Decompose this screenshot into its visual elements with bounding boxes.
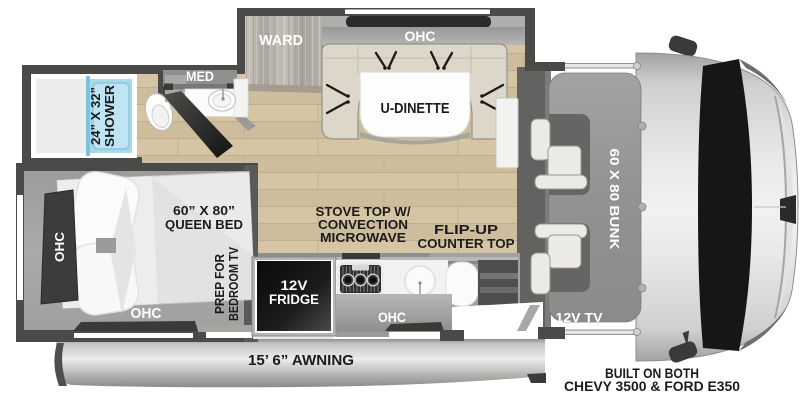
- svg-text:12V: 12V: [281, 278, 308, 293]
- svg-text:QUEEN BED: QUEEN BED: [165, 217, 243, 232]
- svg-text:WARD: WARD: [259, 32, 303, 49]
- svg-text:12V TV: 12V TV: [556, 311, 604, 325]
- svg-text:OHC: OHC: [131, 306, 162, 322]
- svg-text:OHC: OHC: [405, 28, 436, 44]
- svg-text:MICROWAVE: MICROWAVE: [320, 231, 406, 245]
- svg-text:STOVE TOP W/: STOVE TOP W/: [316, 205, 412, 219]
- svg-text:15’ 6” AWNING: 15’ 6” AWNING: [248, 352, 354, 369]
- svg-text:MED: MED: [186, 69, 214, 84]
- svg-text:FLIP-UP: FLIP-UP: [434, 223, 498, 237]
- svg-text:COUNTER TOP: COUNTER TOP: [418, 237, 515, 251]
- svg-text:U-DINETTE: U-DINETTE: [381, 100, 450, 117]
- svg-text:CONVECTION: CONVECTION: [318, 218, 408, 232]
- svg-text:OHC: OHC: [52, 231, 67, 262]
- svg-text:CHEVY 3500 & FORD E350: CHEVY 3500 & FORD E350: [564, 379, 740, 394]
- svg-text:24” X 32”: 24” X 32”: [88, 87, 103, 145]
- svg-text:FRIDGE: FRIDGE: [269, 292, 319, 307]
- svg-text:60” X 80”: 60” X 80”: [173, 203, 235, 218]
- svg-text:SHOWER: SHOWER: [102, 84, 117, 147]
- svg-text:60 X 80 BUNK: 60 X 80 BUNK: [607, 149, 622, 251]
- svg-text:OHC: OHC: [378, 309, 406, 325]
- svg-text:PREP FOR: PREP FOR: [213, 254, 227, 314]
- svg-text:BEDROOM TV: BEDROOM TV: [227, 246, 241, 321]
